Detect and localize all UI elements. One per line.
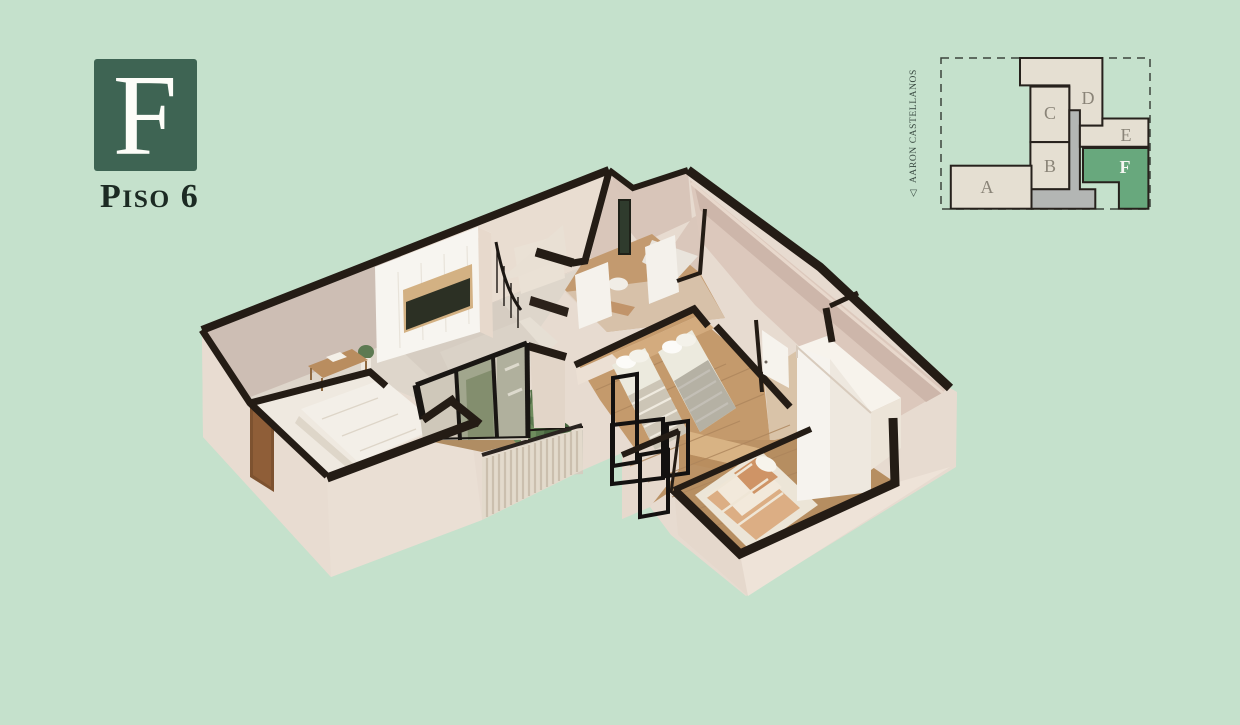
svg-text:B: B bbox=[1044, 156, 1056, 176]
svg-text:F: F bbox=[113, 52, 178, 180]
svg-text:D: D bbox=[1082, 88, 1095, 108]
svg-text:A: A bbox=[981, 177, 994, 197]
svg-text:◁ AARON CASTELLANOS: ◁ AARON CASTELLANOS bbox=[909, 69, 919, 197]
svg-text:E: E bbox=[1121, 125, 1132, 145]
svg-text:C: C bbox=[1044, 103, 1056, 123]
svg-text:F: F bbox=[1120, 157, 1131, 177]
svg-text:PISO 6: PISO 6 bbox=[100, 178, 199, 215]
